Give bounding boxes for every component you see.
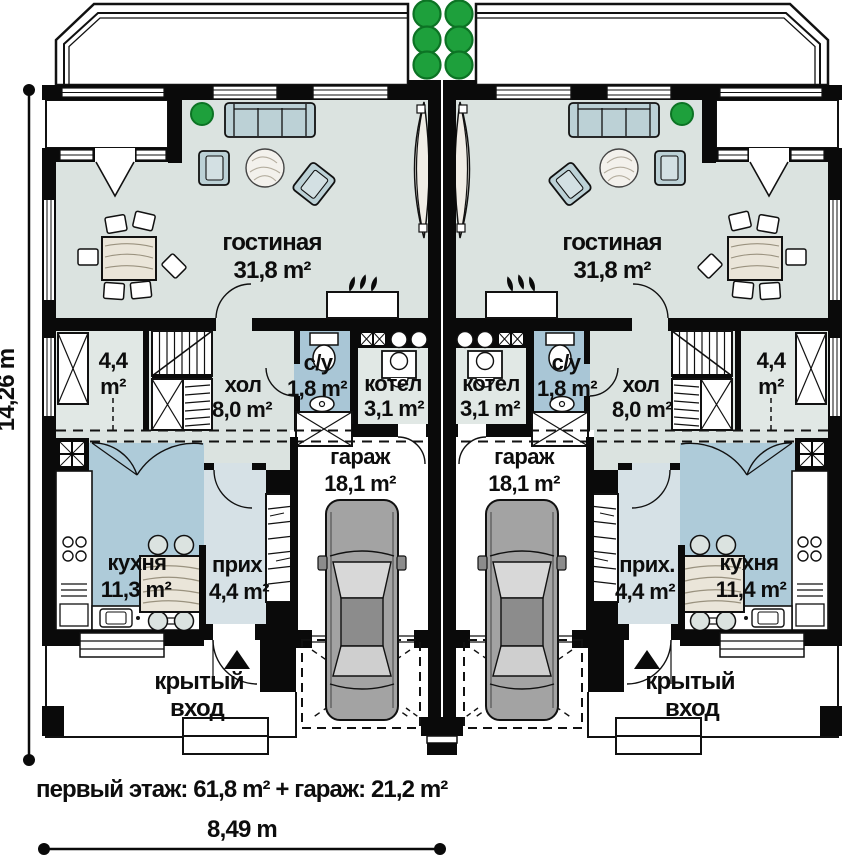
porch-label-right-2: вход (665, 695, 719, 722)
height-dimension-label: 14,26 m (0, 349, 20, 431)
dimension-height: 14,26 m (0, 84, 35, 766)
room-label-garage-right: гараж (494, 444, 555, 469)
room-label-living-right: гостиная (562, 229, 661, 256)
room-area-entry-left: 4,4 m² (209, 579, 269, 604)
floor-plan: 14,26 m 8,49 m первый этаж: 61,8 m² + га… (0, 0, 850, 858)
porch-label-right-1: крытый (645, 668, 734, 695)
room-label-wc-right: с/у (552, 350, 582, 375)
porch-label-left-2: вход (170, 695, 224, 722)
trees (414, 1, 473, 79)
room-area-living-left: 31,8 m² (233, 257, 311, 284)
room-label-boiler-right: котел (462, 371, 520, 396)
room-label-garage-left: гараж (330, 444, 391, 469)
room-area-hall-left: 8,0 m² (212, 397, 272, 422)
room-label-hall-left: хол (225, 372, 262, 397)
room-label-kitchen-left: кухня (108, 550, 167, 575)
room-area-unit-closet-right: m² (758, 374, 784, 399)
room-label-entry-right: прих. (619, 552, 675, 577)
central-step (421, 717, 463, 755)
room-area-wc-right: 1,8 m² (537, 376, 597, 401)
room-label-entry-left: прих (212, 552, 263, 577)
dimension-width: 8,49 m (38, 816, 446, 855)
room-label-kitchen-right: кухня (720, 550, 779, 575)
floor-summary: первый этаж: 61,8 m² + гараж: 21,2 m² (36, 776, 448, 803)
room-area-entry-right: 4,4 m² (615, 579, 675, 604)
room-area-closet-right: 4,4 (757, 348, 787, 373)
room-label-wc-left: с/у (304, 350, 334, 375)
room-area-closet-left: 4,4 (99, 348, 129, 373)
room-area-hall-right: 8,0 m² (612, 397, 672, 422)
room-label-living-left: гостиная (222, 229, 321, 256)
room-area-kitchen-left: 11,3 m² (101, 577, 172, 602)
room-label-hall-right: хол (623, 372, 660, 397)
room-area-garage-right: 18,1 m² (488, 471, 560, 496)
room-area-garage-left: 18,1 m² (324, 471, 396, 496)
room-area-unit-closet-left: m² (100, 374, 126, 399)
room-area-boiler-right: 3,1 m² (460, 396, 520, 421)
room-area-kitchen-right: 11,4 m² (716, 577, 787, 602)
room-area-boiler-left: 3,1 m² (364, 396, 424, 421)
room-label-boiler-left: котел (364, 371, 422, 396)
room-area-wc-left: 1,8 m² (287, 376, 347, 401)
porch-label-left-1: крытый (154, 668, 243, 695)
floor-plan-page: 14,26 m 8,49 m первый этаж: 61,8 m² + га… (0, 0, 850, 858)
room-area-living-right: 31,8 m² (573, 257, 651, 284)
width-dimension-label: 8,49 m (207, 816, 277, 843)
